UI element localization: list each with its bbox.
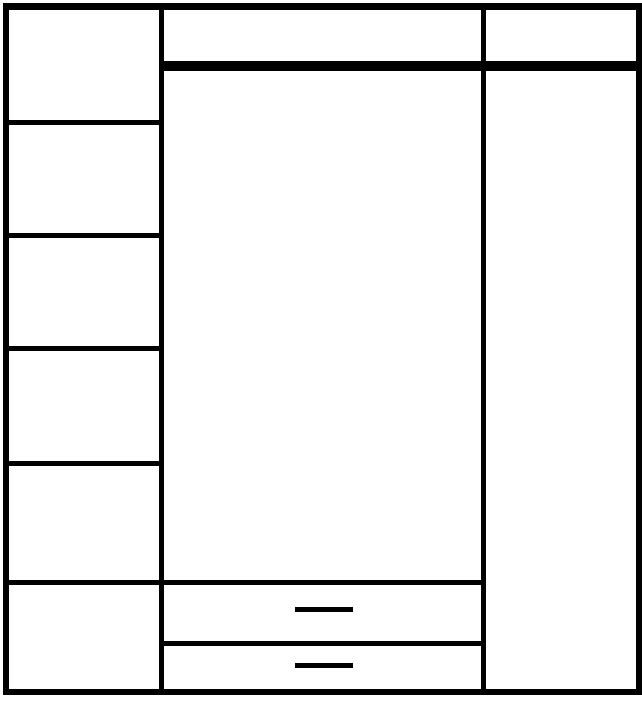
outer-border-top [3, 3, 642, 10]
left-column-cell-1 [9, 10, 159, 120]
header-thick-rule [161, 61, 642, 71]
left-column-cell-2 [9, 125, 159, 233]
blank-table-drawing [0, 0, 642, 702]
header-cell-right [486, 10, 636, 61]
main-body-cell [164, 71, 481, 580]
bottom-dash-row-1 [164, 585, 481, 641]
header-cell-middle [164, 10, 481, 61]
left-column-cell-5 [9, 466, 159, 580]
bottom-dash-row-2 [164, 646, 481, 689]
left-column-cell-6 [9, 585, 159, 689]
outer-border-bottom [3, 689, 642, 695]
right-column-cell [486, 71, 636, 689]
left-column-cell-3 [9, 238, 159, 346]
left-column-cell-4 [9, 351, 159, 461]
outer-border-right [636, 3, 642, 695]
